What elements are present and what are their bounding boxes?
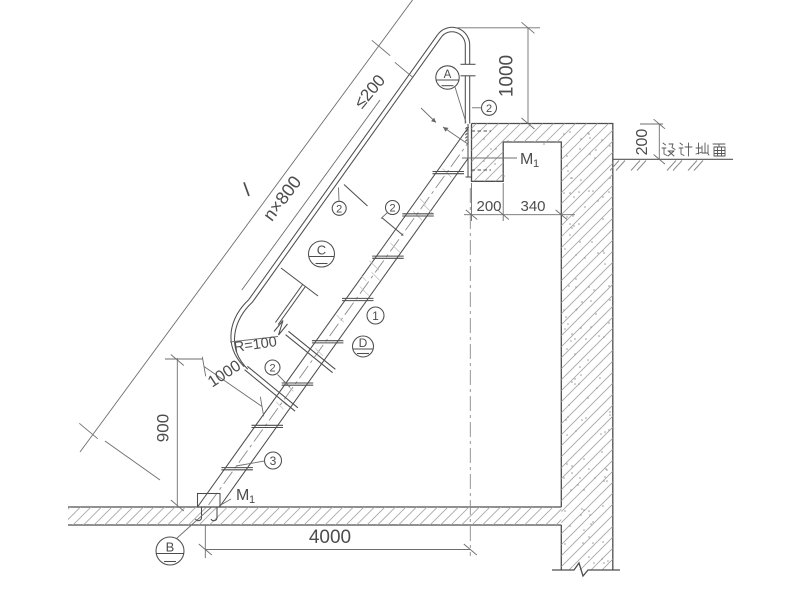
svg-text:M: M xyxy=(520,151,533,168)
svg-text:R=100: R=100 xyxy=(233,334,278,356)
svg-text:1: 1 xyxy=(372,309,379,323)
svg-text:4000: 4000 xyxy=(309,527,351,548)
svg-text:340: 340 xyxy=(520,198,545,215)
svg-text:A: A xyxy=(444,69,452,81)
svg-text:2: 2 xyxy=(269,362,275,374)
svg-text:l: l xyxy=(241,179,253,201)
svg-text:2: 2 xyxy=(336,203,342,215)
svg-text:1: 1 xyxy=(533,158,539,170)
svg-text:200: 200 xyxy=(476,198,501,215)
svg-text:B: B xyxy=(166,540,175,555)
svg-text:200: 200 xyxy=(634,129,651,156)
svg-text:n×800: n×800 xyxy=(259,172,305,224)
svg-text:1: 1 xyxy=(249,494,255,506)
svg-text:2: 2 xyxy=(486,103,492,115)
svg-text:2: 2 xyxy=(389,202,395,214)
svg-text:M: M xyxy=(236,487,249,504)
svg-text:C: C xyxy=(317,243,326,258)
svg-text:900: 900 xyxy=(154,414,173,442)
svg-text:D: D xyxy=(359,336,368,350)
svg-text:1000: 1000 xyxy=(497,55,518,97)
svg-text:3: 3 xyxy=(270,454,277,468)
svg-text:1000: 1000 xyxy=(205,357,244,391)
